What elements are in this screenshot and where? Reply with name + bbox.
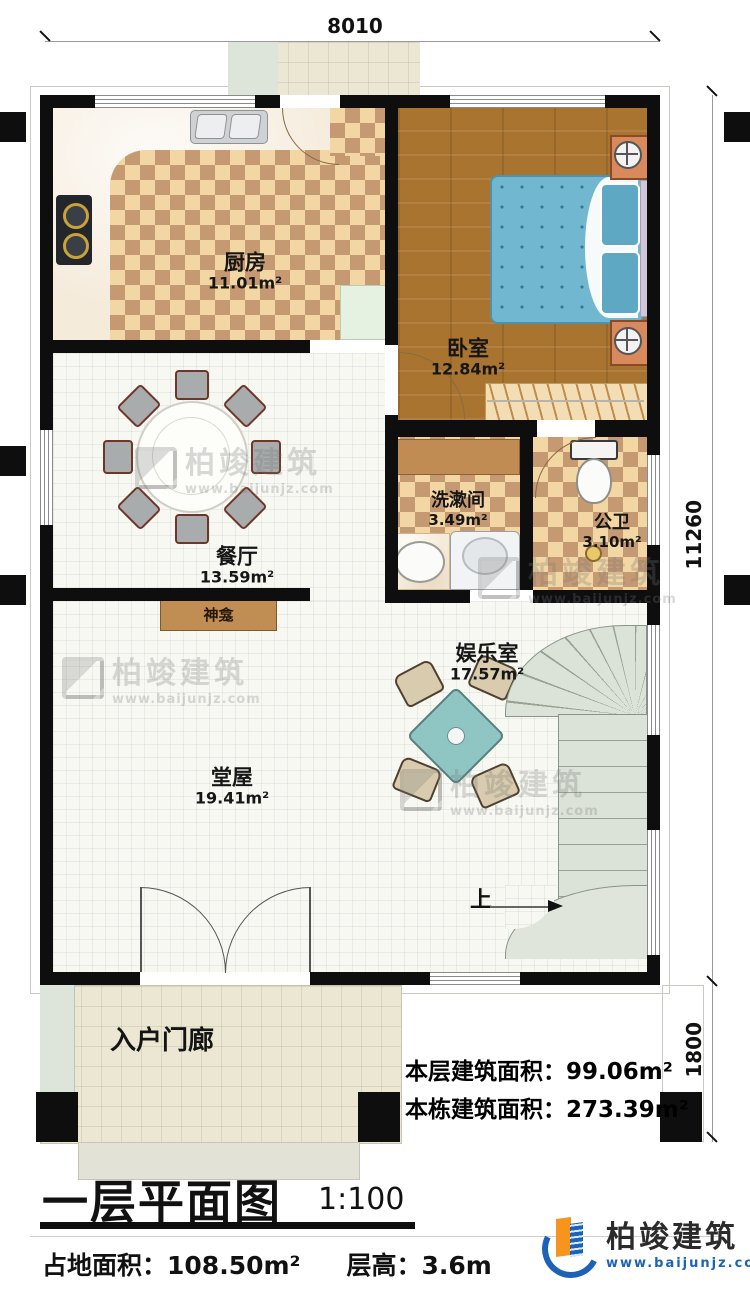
plan-scale: 1:100 <box>318 1182 404 1217</box>
floor-area-annotation: 本层建筑面积：99.06m² <box>405 1052 673 1086</box>
stairs-flight <box>558 714 647 902</box>
window-stairs-upper <box>647 625 660 735</box>
dining-table-ring <box>152 417 230 495</box>
section-mark <box>0 575 26 605</box>
porch-side-strip <box>40 985 75 1092</box>
stairs-arrow-icon <box>548 900 563 912</box>
entry-door-opening <box>140 972 310 985</box>
wall-left <box>40 95 53 985</box>
room-label-hall: 堂屋 19.41m² <box>195 766 269 809</box>
window-toilet <box>647 455 660 545</box>
stove-burner <box>63 233 89 259</box>
wall-washroom-left <box>385 437 398 590</box>
shrine-label: 神龛 <box>203 604 233 625</box>
bed-pillow <box>600 251 640 315</box>
washing-machine-lid <box>462 537 508 575</box>
wall-toilet-bottom <box>533 590 647 603</box>
wall-washroom-toilet <box>520 437 533 590</box>
wall-bedroom-bottom <box>398 420 647 437</box>
room-label-toilet: 公卫 3.10m² <box>582 513 641 551</box>
wall-washroom-bottom <box>385 590 470 603</box>
bed-pillow <box>600 183 640 247</box>
company-logo-icon <box>540 1214 596 1270</box>
site-stats: 占地面积：108.50m² 层高：3.6m <box>42 1246 492 1282</box>
wardrobe-rail <box>487 400 644 402</box>
entry-door-leaf <box>309 887 311 972</box>
stairs-up-label: 上 <box>470 882 492 914</box>
company-website: www.baijunjz.com <box>606 1256 750 1271</box>
porch-label: 入户门廊 <box>110 1020 214 1057</box>
dining-chair <box>175 370 209 400</box>
dimension-top: 8010 <box>300 14 410 38</box>
dining-chair <box>103 440 133 474</box>
title-underline <box>40 1222 415 1229</box>
kitchen-sink-basin <box>228 114 262 139</box>
window-kitchen <box>95 95 255 108</box>
company-name: 柏竣建筑 <box>606 1212 750 1256</box>
wall-dining-hall <box>53 588 310 601</box>
room-label-kitchen: 厨房 11.01m² <box>208 251 282 294</box>
wall-bottom <box>40 972 660 985</box>
nightstand-lamp-icon <box>614 327 642 355</box>
site-area: 占地面积：108.50m² <box>42 1246 301 1282</box>
washroom-sink <box>395 541 445 583</box>
window-stairs-lower <box>647 830 660 955</box>
floorplan-page: 8010 11260 1800 <box>0 0 750 1290</box>
porch-column <box>358 1092 400 1142</box>
entrance-porch <box>40 985 402 1144</box>
dimension-side-upper: 11260 <box>682 500 706 570</box>
wall-kitchen-bedroom <box>385 108 398 345</box>
shrine: 神龛 <box>160 598 277 631</box>
porch-column <box>36 1092 78 1142</box>
dining-chair <box>251 440 281 474</box>
washroom-cabinet <box>390 439 520 475</box>
window-hall-bottom <box>430 972 520 985</box>
window-bedroom <box>450 95 605 108</box>
stove-burner <box>63 203 89 229</box>
wardrobe <box>485 383 648 422</box>
window-dining <box>40 430 53 525</box>
dimension-tick <box>39 30 50 41</box>
building-area-annotation: 本栋建筑面积：273.39m² <box>405 1090 689 1124</box>
entry-door-leaf <box>140 887 142 972</box>
company-logo: 柏竣建筑 www.baijunjz.com <box>540 1212 750 1271</box>
dimension-line-right <box>712 95 713 1142</box>
dimension-tick <box>649 30 660 41</box>
back-porch-step <box>228 42 278 95</box>
back-door-opening <box>280 95 340 108</box>
room-label-washroom: 洗漱间 3.49m² <box>428 491 487 529</box>
section-mark <box>0 112 26 142</box>
room-label-dining: 餐厅 13.59m² <box>200 545 274 588</box>
section-mark <box>724 575 750 605</box>
wall-kitchen-dining <box>53 340 310 353</box>
wall-stub <box>385 415 398 437</box>
room-label-entertainment: 娱乐室 17.57m² <box>450 642 524 685</box>
kitchen-sink-basin <box>194 114 228 139</box>
section-mark <box>0 446 26 476</box>
storey-height: 层高：3.6m <box>347 1246 492 1282</box>
section-mark <box>724 112 750 142</box>
dining-chair <box>175 514 209 544</box>
toilet-door-opening <box>537 420 595 437</box>
entertainment-table-center <box>447 727 465 745</box>
nightstand-lamp-icon <box>614 141 642 169</box>
room-label-bedroom: 卧室 12.84m² <box>431 337 505 380</box>
stairs-arrow-line <box>490 906 552 908</box>
